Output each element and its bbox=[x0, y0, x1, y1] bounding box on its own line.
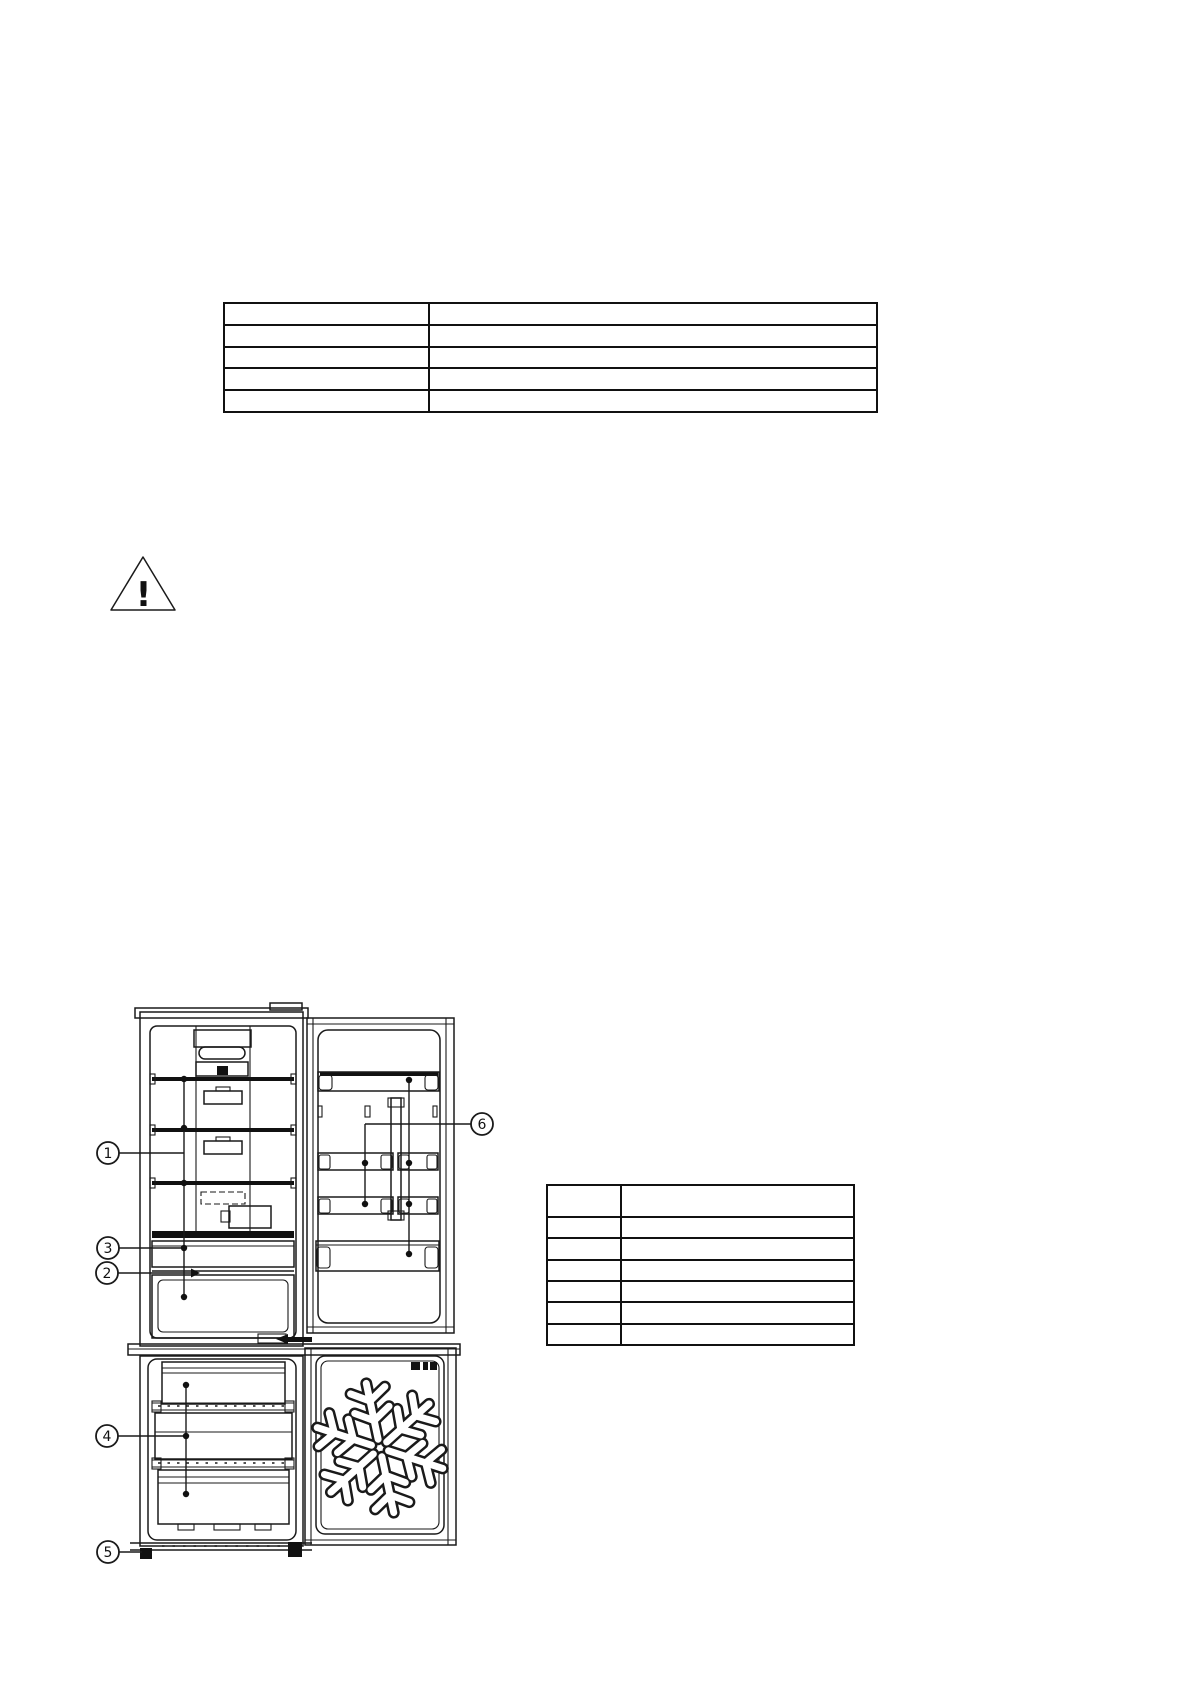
fridge-door bbox=[307, 1018, 454, 1333]
artwork-layer: ! bbox=[0, 0, 1190, 1684]
freezer-door-label bbox=[411, 1362, 437, 1370]
refrigerator-interior-diagram: 1 3 2 4 5 6 bbox=[96, 1003, 493, 1563]
warning-triangle-icon: ! bbox=[111, 557, 175, 615]
callout-3: 3 bbox=[97, 1237, 119, 1259]
callout-1: 1 bbox=[97, 1142, 119, 1164]
freezer-door bbox=[297, 1348, 463, 1545]
callout-5: 5 bbox=[97, 1541, 119, 1563]
snowflake-icon bbox=[297, 1365, 463, 1531]
manual-page: ! bbox=[0, 0, 1190, 1684]
callout-4-label: 4 bbox=[103, 1429, 112, 1445]
callout-2-arrow bbox=[191, 1269, 200, 1278]
warning-exclamation: ! bbox=[136, 575, 152, 615]
freezer-cabinet bbox=[130, 1356, 312, 1559]
fridge-cabinet bbox=[135, 1003, 308, 1346]
callout-6: 6 bbox=[471, 1113, 493, 1135]
callout-2-label: 2 bbox=[103, 1266, 112, 1282]
callout-4: 4 bbox=[96, 1425, 118, 1447]
callout-1-label: 1 bbox=[104, 1146, 113, 1162]
cabinet-divider bbox=[128, 1334, 460, 1355]
callout-3-label: 3 bbox=[104, 1241, 113, 1257]
callout-2: 2 bbox=[96, 1262, 118, 1284]
callout-6-label: 6 bbox=[478, 1117, 487, 1133]
callout-5-label: 5 bbox=[104, 1545, 113, 1561]
